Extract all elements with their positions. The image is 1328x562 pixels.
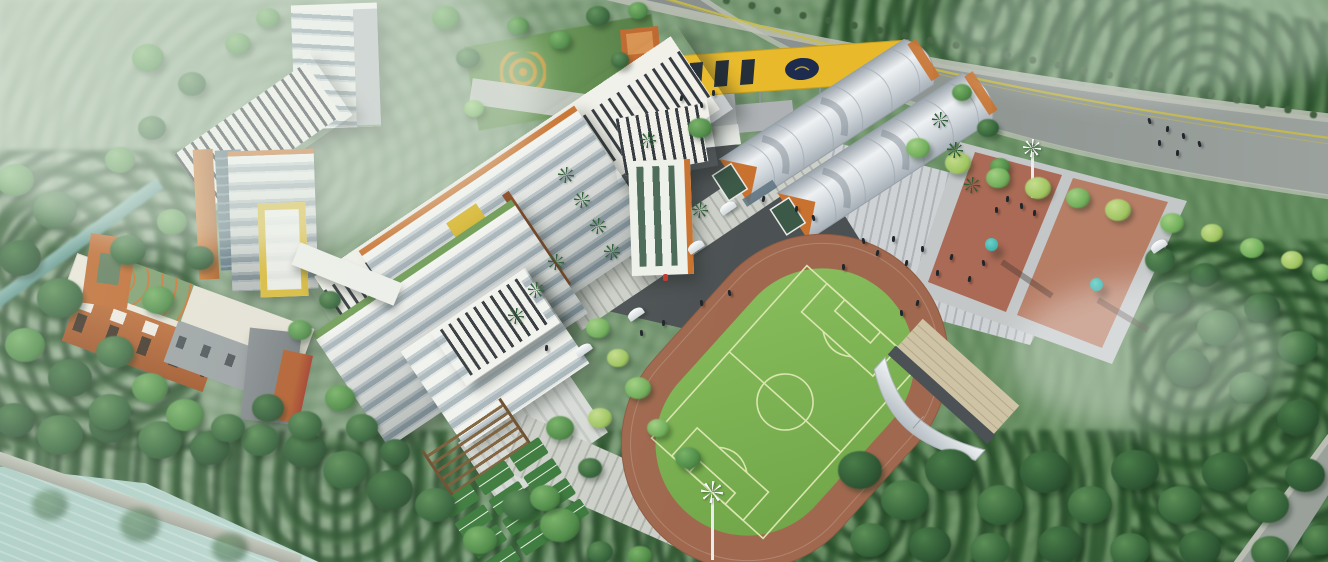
bench-canopy [626,305,645,322]
palm-tree [558,167,574,183]
palm-tree [692,202,708,218]
bench-canopy [718,199,737,216]
palm-tree [964,177,980,193]
floodlight [701,481,723,503]
palm-tree [947,142,963,158]
palm-tree [932,112,948,128]
palm-tree [528,282,544,298]
bench-canopy [686,238,705,255]
plaza-lamp [1023,139,1041,157]
palm-tree [640,132,656,148]
palm-tree [604,244,620,260]
decoration-layer [0,0,1328,562]
bench-canopy [574,341,593,358]
palm-tree [590,218,606,234]
palm-tree [574,192,590,208]
palm-tree [508,308,524,324]
palm-tree [548,254,564,270]
campus-aerial-rendering [0,0,1328,562]
bench-canopy [1149,237,1168,254]
